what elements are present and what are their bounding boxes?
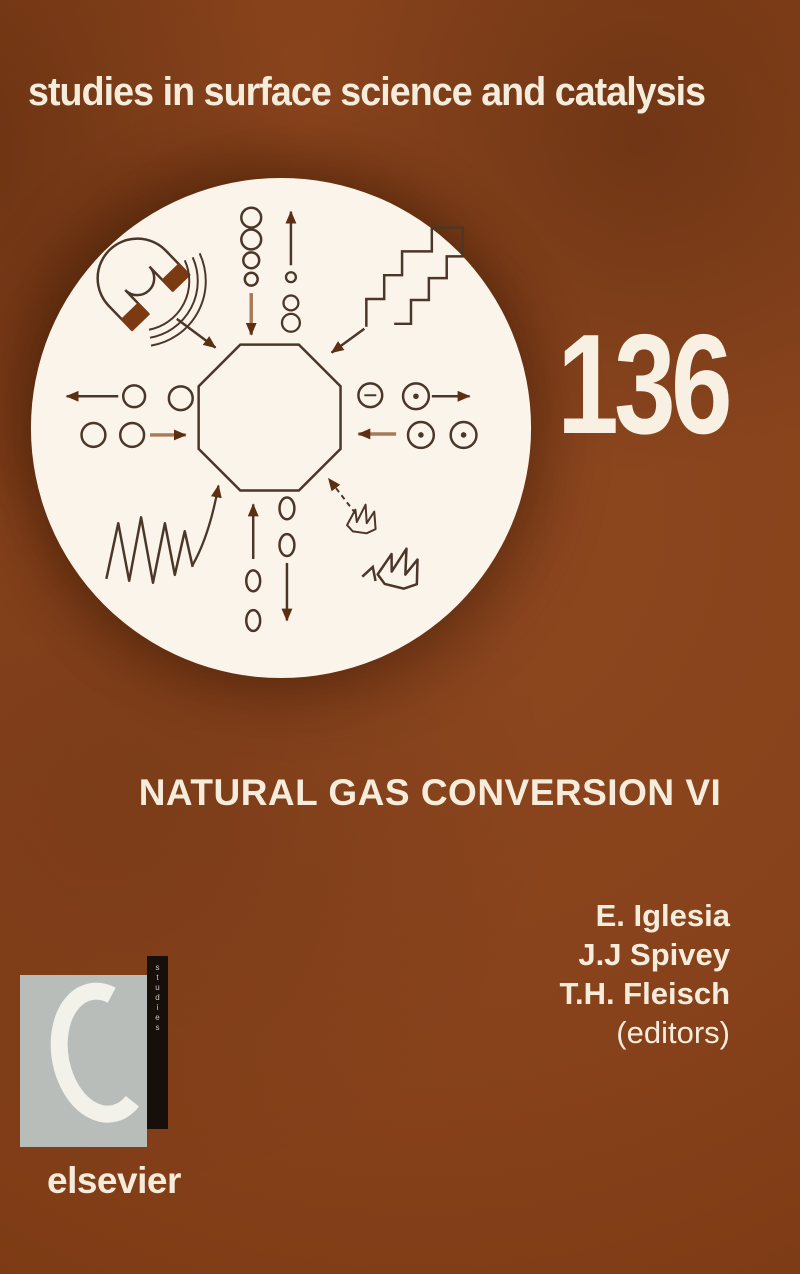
editors-suffix: (editors) <box>559 1013 730 1052</box>
spine-bar: studies <box>147 956 168 1129</box>
book-cover: studies in surface science and catalysis <box>0 0 800 1274</box>
series-title: studies in surface science and catalysis <box>28 70 705 115</box>
book-title: NATURAL GAS CONVERSION VI <box>120 772 740 814</box>
editor-name: E. Iglesia <box>559 896 730 935</box>
reaction-emblem <box>23 170 539 686</box>
editor-name: J.J Spivey <box>559 935 730 974</box>
publisher-wordmark: elsevier <box>47 1160 181 1202</box>
spine-vertical-text: studies <box>147 963 168 1033</box>
editors-block: E. Iglesia J.J Spivey T.H. Fleisch (edit… <box>559 896 730 1052</box>
octagon-reactor <box>199 345 341 491</box>
series-logo <box>20 975 147 1147</box>
volume-number: 136 <box>557 314 728 456</box>
editor-name: T.H. Fleisch <box>559 974 730 1013</box>
